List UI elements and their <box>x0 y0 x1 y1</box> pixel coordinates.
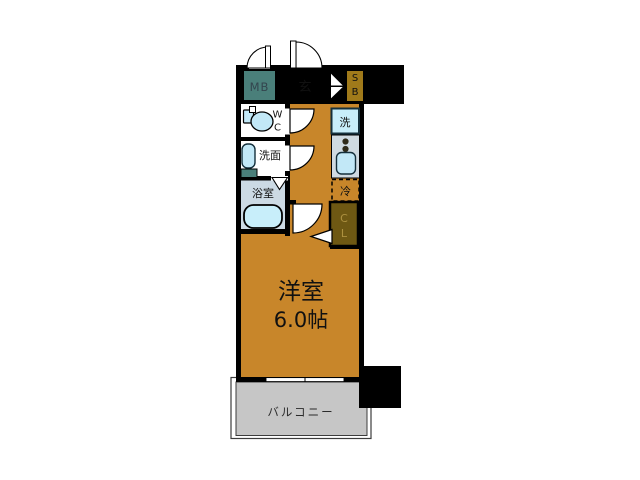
wc-doorway-gap <box>285 109 290 135</box>
sink-icon <box>242 144 255 168</box>
bathtub-icon <box>244 205 282 228</box>
closet-label-l: L <box>341 227 348 240</box>
balcony-area: バルコニー <box>231 378 371 439</box>
left-door-arc-icon <box>247 47 268 68</box>
structure-block <box>359 366 401 408</box>
floorplan-canvas: バルコニー MB 玄 S B <box>0 0 640 480</box>
meter-box: MB <box>243 70 276 101</box>
stove-burner-dot-2 <box>342 146 348 152</box>
exterior-door-arcs <box>247 41 322 68</box>
refrigerator-label: 冷 <box>340 185 351 198</box>
closet: C L <box>330 202 358 246</box>
meter-box-label: MB <box>250 80 270 94</box>
window <box>266 378 344 382</box>
main-room-size-label: 6.0帖 <box>274 308 328 332</box>
pipe-space <box>241 169 257 178</box>
wall-wc-washroom <box>236 137 290 141</box>
left-wall <box>236 65 241 382</box>
main-room-floor-left <box>241 234 290 377</box>
stove-burner-dot-1 <box>342 138 348 144</box>
wc-label-w: W <box>273 110 283 121</box>
shoe-box: S B <box>346 70 364 102</box>
washroom-doorway-gap <box>285 146 290 172</box>
kitchen-sink-icon <box>337 153 356 175</box>
shoe-box-label-s: S <box>352 73 358 84</box>
wall-bathroom-bottom <box>236 229 290 234</box>
wc-room: W C <box>244 107 283 134</box>
closet-label-c: C <box>340 212 348 225</box>
washroom: 洗面 <box>241 144 281 178</box>
toilet-flag <box>250 107 256 113</box>
kitchen-counter <box>332 135 360 178</box>
floorplan-svg: バルコニー MB 玄 S B <box>0 0 640 480</box>
washroom-label: 洗面 <box>259 149 281 162</box>
left-door-leaf <box>266 46 271 68</box>
shoe-box-label-b: B <box>352 87 359 98</box>
entrance-door-arc-icon <box>296 42 322 68</box>
entrance-door-leaf <box>291 41 297 68</box>
entrance-label: 玄 <box>298 80 311 95</box>
toilet-bowl <box>251 112 273 131</box>
washing-machine-space: 洗 <box>332 109 360 134</box>
bathroom-label: 浴室 <box>252 186 274 200</box>
washing-machine-label: 洗 <box>340 116 351 129</box>
main-room-label: 洋室 <box>278 279 324 305</box>
wc-label-c: C <box>274 123 281 134</box>
balcony-label: バルコニー <box>267 405 334 419</box>
toilet-icon <box>244 107 274 132</box>
